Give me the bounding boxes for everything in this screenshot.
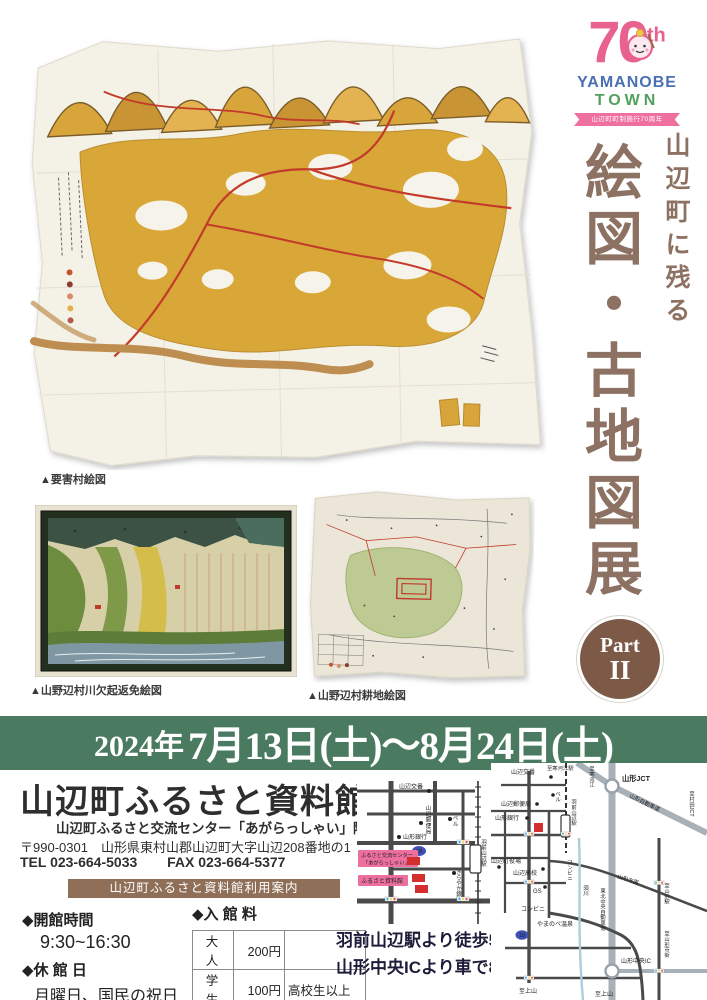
old-map-photo-yogai-village	[12, 18, 547, 470]
fee-amount: 200円	[234, 931, 285, 970]
bell-label: ベル	[451, 815, 458, 827]
jct-circle	[606, 780, 619, 793]
venue-tel: TEL 023-664-5033	[20, 854, 137, 870]
part-label: Part	[600, 635, 640, 656]
route-badge: 18	[516, 930, 529, 940]
exhibition-poster: ▲要害村絵図 70th YAMANOBE TOWN 山辺町町制施行70周年 山辺…	[0, 0, 707, 1000]
mascot-icon	[621, 26, 659, 64]
center-building	[407, 857, 420, 865]
yamagata-bank-label: 山形銀行	[495, 814, 519, 822]
logo-town-name-en: YAMANOBE	[561, 74, 693, 92]
police-label: 山辺交番	[511, 768, 535, 776]
to-murata-label: 至村田JCT	[688, 791, 695, 818]
convenience-b-label: コンビニ	[521, 905, 545, 913]
onsen-label: やまのべ温泉	[537, 920, 573, 928]
date-year: 2024年	[94, 721, 184, 765]
venue-subtitle: 山辺町ふるさと交流センター「あがらっしゃい」隣接	[56, 817, 380, 837]
access-walk: 羽前山辺駅より徒歩5分	[336, 927, 515, 954]
caption-yogai-map: ▲要害村絵図	[40, 471, 106, 487]
post-office-label: 山辺郵便局	[424, 804, 431, 835]
high-school-label: 山辺高校	[513, 869, 537, 877]
caption-kawakake-map: ▲山野辺村川欠起返免絵図	[30, 682, 162, 698]
svg-text:「あがらっしゃい」: 「あがらっしゃい」	[363, 859, 410, 867]
old-map-photo-kawakake	[35, 505, 297, 677]
closed-value: 月曜日、国民の祝日	[34, 982, 178, 1000]
part-number: II	[609, 657, 630, 684]
to-sagae-station-label: 至寒河江駅	[547, 764, 574, 772]
venue-contact: TEL 023-664-5033 FAX 023-664-5377	[20, 854, 311, 870]
exhibition-dates-banner: 2024年 7月13日(土)～8月24日(土)	[0, 716, 707, 770]
svg-text:18: 18	[519, 933, 525, 939]
ic-label: 山形中央IC	[621, 957, 652, 965]
closed-label: ◆休 館 日	[22, 959, 178, 980]
svg-text:ふるさと資料館: ふるさと資料館	[361, 877, 403, 885]
museum-annex	[415, 885, 428, 893]
station-label: 羽前山辺駅	[480, 839, 487, 868]
opening-hours-block: ◆開館時間 9:30~16:30 ◆休 館 日 月曜日、国民の祝日	[22, 903, 178, 1000]
tagline-vertical: 山辺町に残る	[657, 132, 693, 330]
post-office-label: 山辺郵便局	[501, 800, 531, 808]
logo-ribbon: 山辺町町制施行70周年	[574, 113, 680, 126]
access-map-detail: 羽前山辺駅 山辺交番 山辺郵便局 ベル 山形銀行 18 ふるさと交流センター 「…	[357, 781, 490, 924]
museum-marker	[534, 823, 543, 832]
access-directions: 羽前山辺駅より徒歩5分 山形中央ICより車で8分	[336, 927, 515, 981]
convenience-a-label: コンビニ	[566, 859, 573, 882]
old-map-photo-kochi	[302, 484, 535, 688]
admission-label: ◆入 館 料	[192, 903, 366, 924]
bell-label: ベル	[554, 791, 561, 803]
svg-text:ふるさと交流センター: ふるさと交流センター	[361, 851, 413, 859]
yamagata-bank-label: 山形銀行	[403, 833, 427, 841]
caption-kochi-map: ▲山野辺村耕地絵図	[307, 687, 406, 703]
fee-type: 学 生	[193, 970, 234, 1000]
to-yamagata-station-label: 至山形駅	[663, 883, 670, 906]
to-kaminoyama-expwy-label: 至上山	[595, 990, 613, 998]
ic-circle	[606, 965, 619, 978]
tohoku-expwy-label: 東北中央自動車道	[599, 887, 606, 932]
gas-station-label: GS	[533, 889, 542, 895]
usage-info-bar: 山辺町ふるさと資料館利用案内	[68, 879, 340, 898]
police-label: 山辺交番	[399, 783, 423, 791]
hours-value: 9:30~16:30	[40, 932, 178, 953]
museum-building	[412, 874, 425, 882]
exhibition-title: 絵図・古地図展	[566, 142, 650, 604]
logo-number: 70th	[561, 14, 693, 72]
museum-label: ふるさと資料館	[358, 875, 408, 886]
venue-fax: FAX 023-664-5377	[167, 854, 285, 870]
town-hall-label: 山辺町役場	[491, 857, 521, 865]
area-map-wide: 山辺交番 至寒河江駅 山形JCT 至寒河江 山形自動車道 至村田JCT 山辺郵便…	[491, 763, 707, 1000]
to-sagae-label: 至寒河江	[588, 766, 595, 789]
jct-label: 山形JCT	[622, 774, 651, 783]
hours-label: ◆開館時間	[22, 909, 178, 930]
to-yamagata-city-label: 至山形市街	[663, 931, 670, 959]
station-label: 羽前山辺駅	[570, 799, 577, 827]
fee-type: 大 人	[193, 931, 234, 970]
fee-amount: 100円	[234, 970, 285, 1000]
access-car: 山形中央ICより車で8分	[336, 954, 515, 981]
part-two-badge: Part II	[577, 616, 663, 702]
venue-name: 山辺町ふるさと資料館	[20, 774, 370, 823]
to-kaminoyama-town-label: 至上山	[519, 987, 537, 995]
seventy-anniversary-logo: 70th YAMANOBE TOWN 山辺町町制施行70周年	[561, 14, 693, 126]
river-label: 須川	[582, 884, 589, 897]
logo-town-word: TOWN	[561, 92, 693, 110]
